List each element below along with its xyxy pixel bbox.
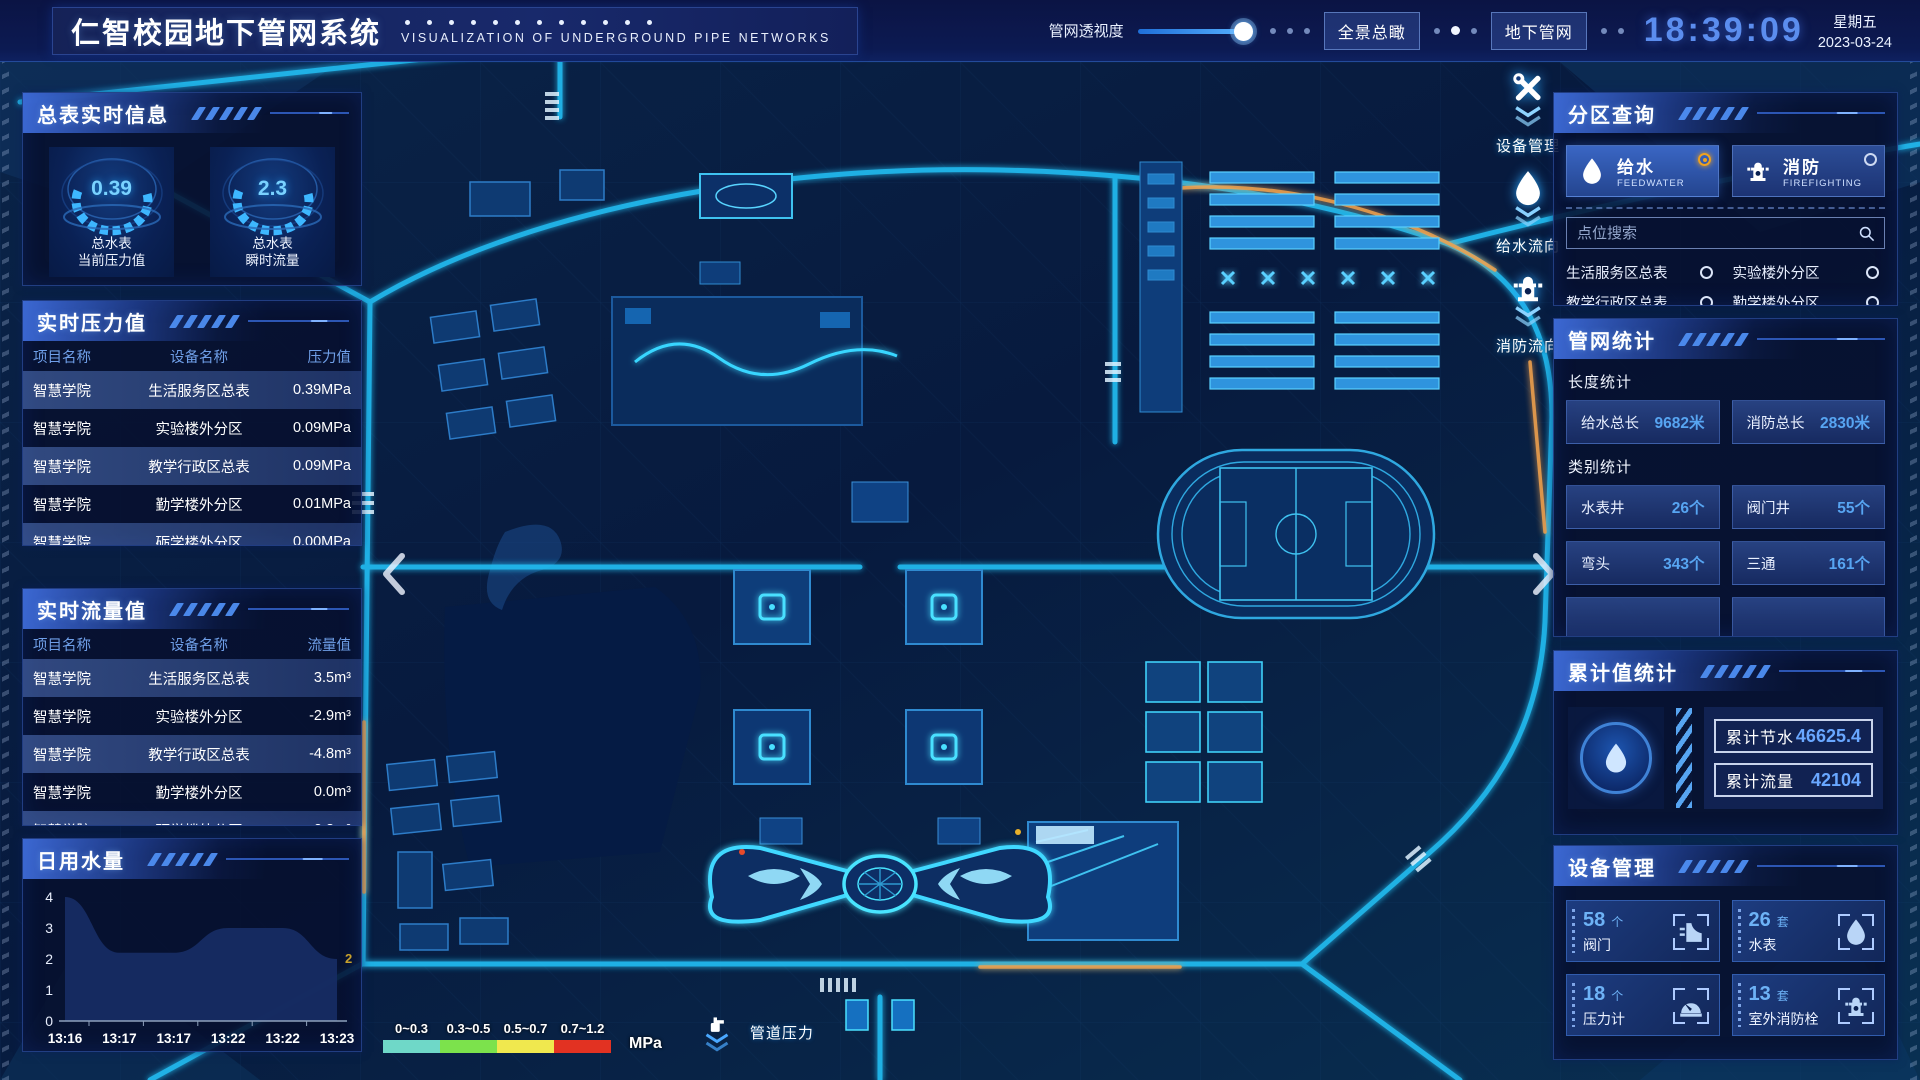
flow-table-body: 智慧学院 生活服务区总表 3.5m³ 智慧学院 实验楼外分区 -2.9m³ 智慧… xyxy=(23,659,361,826)
device-name: 教学行政区总表 xyxy=(125,456,273,477)
weekday-label: 星期五 xyxy=(1833,11,1877,32)
device-name: 砺学楼外分区 xyxy=(125,532,273,547)
stat-box: 三通 161个 xyxy=(1732,541,1886,585)
device-unit: 个 xyxy=(1611,915,1623,929)
opacity-slider-label: 管网透视度 xyxy=(1049,20,1124,41)
underground-button[interactable]: 地下管网 xyxy=(1491,12,1587,50)
device-name: 实验楼外分区 xyxy=(125,706,273,727)
legend-range-label: 0~0.3 xyxy=(395,1021,428,1036)
gauge-label: 总水表当前压力值 xyxy=(49,235,174,269)
flow-value: 3.5m³ xyxy=(273,670,351,686)
y-tick-label: 0 xyxy=(45,1013,53,1029)
cumulative-label: 累计流量 xyxy=(1726,768,1794,792)
panel-device-management: 设备管理 58个 阀门 26套 水表 xyxy=(1553,845,1898,1060)
device-name: 勤学楼外分区 xyxy=(125,494,273,515)
x-tick-label: 13:17 xyxy=(157,1031,192,1046)
project-name: 智慧学院 xyxy=(33,418,125,439)
pressure-table-row[interactable]: 智慧学院 实验楼外分区 0.09MPa xyxy=(23,409,361,447)
project-name: 智慧学院 xyxy=(33,532,125,547)
device-icon xyxy=(1838,914,1874,950)
pressure-value: 0.01MPa xyxy=(273,496,351,512)
panel-meter-info: 总表实时信息 0.39 总水表当前压力值 xyxy=(22,92,362,286)
slider-track[interactable] xyxy=(1138,29,1250,34)
panel-title: 累计值统计 xyxy=(1568,657,1678,686)
gauge-flow: 2.3 总水表瞬时流量 xyxy=(210,147,335,277)
legend-range-label: 0.5~0.7 xyxy=(504,1021,548,1036)
panel-header: 总表实时信息 xyxy=(23,93,361,133)
panel-title: 设备管理 xyxy=(1568,852,1656,881)
legend-title: 管道压力 xyxy=(750,1022,814,1053)
slash-decoration xyxy=(1682,107,1745,120)
panel-title: 实时流量值 xyxy=(37,595,147,624)
float-button-label: 消防流向 xyxy=(1496,335,1560,356)
zone-radio[interactable] xyxy=(1700,296,1713,307)
tab-label: 给水 xyxy=(1617,153,1685,178)
legend-unit: MPa xyxy=(629,1035,662,1053)
pressure-value: 0.09MPa xyxy=(273,420,351,436)
stat-value: 55个 xyxy=(1837,496,1870,518)
category-stats-grid: 水表井 26个 阀门井 55个 弯头 343个 三通 xyxy=(1554,485,1897,637)
legend-color-swatch xyxy=(554,1040,611,1053)
project-name: 智慧学院 xyxy=(33,820,125,827)
stat-box: 弯头 343个 xyxy=(1566,541,1720,585)
hatch-decoration xyxy=(1676,708,1692,808)
device-count: 13 xyxy=(1749,983,1771,1005)
app-title-box: 仁智校园地下管网系统 VISUALIZATION OF UNDERGROUND … xyxy=(52,7,858,55)
zone-radio-item[interactable]: 教学行政区总表 xyxy=(1566,287,1719,306)
zone-list: 生活服务区总表 实验楼外分区 教学行政区总表 勤学楼外分区 xyxy=(1554,249,1897,306)
project-name: 智慧学院 xyxy=(33,668,125,689)
flow-table-row[interactable]: 智慧学院 生活服务区总表 3.5m³ xyxy=(23,659,361,697)
cumulative-rows: 累计节水 46625.4 累计流量 42104 xyxy=(1704,707,1883,809)
flow-value: -2.9m³ xyxy=(273,708,351,724)
overview-button[interactable]: 全景总瞰 xyxy=(1324,12,1420,50)
dashboard: 仁智校园地下管网系统 VISUALIZATION OF UNDERGROUND … xyxy=(0,0,1920,1080)
stat-label: 消防总长 xyxy=(1747,412,1805,433)
stat-label: 三通 xyxy=(1747,553,1776,574)
float-button-icon xyxy=(1508,268,1548,308)
stat-label: 阀门井 xyxy=(1747,497,1791,518)
zone-radio[interactable] xyxy=(1700,266,1713,279)
panel-title: 管网统计 xyxy=(1568,325,1656,354)
cumulative-row: 累计节水 46625.4 xyxy=(1714,719,1873,753)
stat-label: 水表井 xyxy=(1581,497,1625,518)
project-name: 智慧学院 xyxy=(33,782,125,803)
cumulative-label: 累计节水 xyxy=(1726,724,1794,748)
area-series xyxy=(65,897,337,1021)
panel-realtime-flow: 实时流量值 项目名称 设备名称 流量值 智慧学院 生活服务区总表 3.5m³ 智 xyxy=(22,588,362,826)
device-cards-grid: 58个 阀门 26套 水表 18个 压力计 xyxy=(1554,886,1897,1036)
category-stats-label: 类别统计 xyxy=(1554,444,1897,485)
project-name: 智慧学院 xyxy=(33,380,125,401)
project-name: 智慧学院 xyxy=(33,706,125,727)
device-card[interactable]: 18个 压力计 xyxy=(1566,974,1720,1036)
float-button-icon xyxy=(1508,168,1548,208)
gauge-value: 2.3 xyxy=(210,177,335,201)
separator-dots-small xyxy=(1601,28,1624,34)
pressure-table-row[interactable]: 智慧学院 教学行政区总表 0.09MPa xyxy=(23,447,361,485)
y-tick-label: 2 xyxy=(45,951,53,967)
device-name: 生活服务区总表 xyxy=(125,668,273,689)
stat-value: 2830米 xyxy=(1820,411,1870,433)
zone-radio[interactable] xyxy=(1866,296,1879,307)
header-line xyxy=(270,112,349,114)
stat-label: 给水总长 xyxy=(1581,412,1639,433)
flow-table-row[interactable]: 智慧学院 教学行政区总表 -4.8m³ xyxy=(23,735,361,773)
device-name: 砺学楼外分区 xyxy=(125,820,273,827)
zone-label: 教学行政区总表 xyxy=(1566,292,1668,307)
device-name: 实验楼外分区 xyxy=(125,418,273,439)
device-unit: 套 xyxy=(1777,989,1789,1003)
map-float-button[interactable]: 消防流向 xyxy=(1496,268,1560,356)
x-tick-label: 13:16 xyxy=(48,1031,83,1046)
flow-value: 0.0m³ xyxy=(273,784,351,800)
device-card[interactable]: 58个 阀门 xyxy=(1566,900,1720,962)
y-tick-label: 1 xyxy=(45,982,53,998)
cumulative-value: 42104 xyxy=(1811,770,1861,791)
pressure-value: 0.00MPa xyxy=(273,534,351,546)
tab-sublabel: FEEDWATER xyxy=(1617,178,1685,189)
panel-cumulative-stats: 累计值统计 累计节水 46625.4 累计流量 xyxy=(1553,650,1898,835)
flow-value: -4.8m³ xyxy=(273,746,351,762)
flow-table-row[interactable]: 智慧学院 砺学楼外分区 2.3m³ xyxy=(23,811,361,826)
search-icon[interactable] xyxy=(1857,224,1876,243)
device-icon xyxy=(1838,988,1874,1024)
separator-dots xyxy=(1270,28,1310,34)
device-name: 生活服务区总表 xyxy=(125,380,273,401)
device-name: 勤学楼外分区 xyxy=(125,782,273,803)
float-button-icon xyxy=(1508,68,1548,108)
panel-realtime-pressure: 实时压力值 项目名称 设备名称 压力值 智慧学院 生活服务区总表 0.39MPa xyxy=(22,300,362,546)
project-name: 智慧学院 xyxy=(33,494,125,515)
device-count: 18 xyxy=(1583,983,1605,1005)
chevron-down-icon xyxy=(1511,306,1545,333)
top-header: 仁智校园地下管网系统 VISUALIZATION OF UNDERGROUND … xyxy=(0,0,1920,62)
left-edge-decoration xyxy=(2,62,9,1080)
gauge-label: 总水表瞬时流量 xyxy=(210,235,335,269)
flow-table-row[interactable]: 智慧学院 勤学楼外分区 0.0m³ xyxy=(23,773,361,811)
zone-label: 实验楼外分区 xyxy=(1733,262,1820,283)
table-header: 项目名称 设备名称 流量值 xyxy=(23,629,361,659)
panel-zone-query: 分区查询 给水 FEEDWATER 消防 FIREFIGHTING xyxy=(1553,92,1898,306)
legend-color-swatch xyxy=(440,1040,497,1053)
pressure-table-row[interactable]: 智慧学院 勤学楼外分区 0.01MPa xyxy=(23,485,361,523)
device-icon xyxy=(1673,914,1709,950)
stat-value: 9682米 xyxy=(1655,411,1705,433)
stat-value: 343个 xyxy=(1663,552,1704,574)
y-tick-label: 3 xyxy=(45,920,53,936)
legend-range-label: 0.7~1.2 xyxy=(561,1021,605,1036)
x-tick-label: 13:17 xyxy=(102,1031,137,1046)
device-unit: 套 xyxy=(1777,915,1789,929)
clock-time: 18:39:09 xyxy=(1644,11,1804,50)
hydrant-icon xyxy=(1743,156,1773,186)
pressure-legend: 0~0.3 0.3~0.5 0.5~0.7 0.7~1.2 M xyxy=(383,1014,814,1053)
slash-decoration xyxy=(151,853,214,866)
tab-firefighting[interactable]: 消防 FIREFIGHTING xyxy=(1732,145,1885,197)
length-stats-grid: 给水总长 9682米 消防总长 2830米 xyxy=(1554,400,1897,444)
point-search-box[interactable] xyxy=(1566,217,1885,249)
zone-radio[interactable] xyxy=(1866,266,1879,279)
legend-segment: 0.7~1.2 xyxy=(554,1021,611,1053)
gauge-pressure: 0.39 总水表当前压力值 xyxy=(49,147,174,277)
tab-radio[interactable] xyxy=(1698,153,1711,166)
panel-pipe-stats: 管网统计 长度统计 给水总长 9682米 消防总长 2830米 类别统计 xyxy=(1553,318,1898,637)
legend-segment: 0~0.3 xyxy=(383,1021,440,1053)
separator-dots-active xyxy=(1434,26,1477,35)
device-icon xyxy=(1673,988,1709,1024)
project-name: 智慧学院 xyxy=(33,456,125,477)
stat-box: 消防总长 2830米 xyxy=(1732,400,1886,444)
zone-radio-item[interactable]: 生活服务区总表 xyxy=(1566,257,1719,287)
stat-label: 弯头 xyxy=(1581,553,1610,574)
legend-segment: 0.3~0.5 xyxy=(440,1021,497,1053)
legend-range-label: 0.3~0.5 xyxy=(447,1021,491,1036)
pressure-table-row[interactable]: 智慧学院 砺学楼外分区 0.00MPa xyxy=(23,523,361,546)
stat-box: 水表井 26个 xyxy=(1566,485,1720,529)
chevron-down-icon xyxy=(1511,206,1545,233)
tab-radio[interactable] xyxy=(1864,153,1877,166)
device-unit: 个 xyxy=(1611,989,1623,1003)
panel-title: 日用水量 xyxy=(37,845,125,874)
slash-decoration xyxy=(195,107,258,120)
right-edge-decoration xyxy=(1910,62,1917,1080)
device-count: 58 xyxy=(1583,909,1605,931)
gauge-value: 0.39 xyxy=(49,177,174,201)
slash-decoration xyxy=(1682,333,1745,346)
pressure-value: 0.39MPa xyxy=(273,382,351,398)
opacity-slider[interactable] xyxy=(1138,21,1256,41)
stat-box xyxy=(1732,597,1886,637)
slash-decoration xyxy=(173,315,236,328)
app-subtitle: VISUALIZATION OF UNDERGROUND PIPE NETWOR… xyxy=(401,31,831,45)
flow-table-row[interactable]: 智慧学院 实验楼外分区 -2.9m³ xyxy=(23,697,361,735)
y-tick-label: 4 xyxy=(45,889,53,905)
pressure-value: 0.09MPa xyxy=(273,458,351,474)
stat-box: 阀门井 55个 xyxy=(1732,485,1886,529)
x-tick-label: 13:22 xyxy=(211,1031,246,1046)
float-button-label: 给水流向 xyxy=(1496,235,1560,256)
legend-segment: 0.5~0.7 xyxy=(497,1021,554,1053)
water-drop-icon xyxy=(1577,156,1607,186)
stat-box: 给水总长 9682米 xyxy=(1566,400,1720,444)
zone-radio-item[interactable]: 勤学楼外分区 xyxy=(1733,287,1886,306)
tab-sublabel: FIREFIGHTING xyxy=(1783,178,1862,189)
device-card[interactable]: 13套 室外消防栓 xyxy=(1732,974,1886,1036)
legend-color-swatch xyxy=(383,1040,440,1053)
tab-feedwater[interactable]: 给水 FEEDWATER xyxy=(1566,145,1719,197)
zone-label: 生活服务区总表 xyxy=(1566,262,1668,283)
water-drop-icon xyxy=(1580,722,1652,794)
map-float-button[interactable]: 给水流向 xyxy=(1496,168,1560,256)
zone-label: 勤学楼外分区 xyxy=(1733,292,1820,307)
cumulative-row: 累计流量 42104 xyxy=(1714,763,1873,797)
table-header: 项目名称 设备名称 压力值 xyxy=(23,341,361,371)
panel-title: 实时压力值 xyxy=(37,307,147,336)
map-float-button[interactable]: 设备管理 xyxy=(1496,68,1560,156)
pressure-table-row[interactable]: 智慧学院 生活服务区总表 0.39MPa xyxy=(23,371,361,409)
device-name: 教学行政区总表 xyxy=(125,744,273,765)
tab-label: 消防 xyxy=(1783,153,1862,178)
slash-decoration xyxy=(1704,665,1767,678)
panel-title: 总表实时信息 xyxy=(37,99,169,128)
stat-box xyxy=(1566,597,1720,637)
length-stats-label: 长度统计 xyxy=(1554,359,1897,400)
x-tick-label: 13:23 xyxy=(320,1031,355,1046)
float-button-label: 设备管理 xyxy=(1496,135,1560,156)
legend-bar: 0~0.3 0.3~0.5 0.5~0.7 0.7~1.2 xyxy=(383,1021,611,1053)
stat-value: 26个 xyxy=(1672,496,1705,518)
panel-daily-water: 日用水量 0123413:1613:1713:1713:2213:2213:23… xyxy=(22,838,362,1052)
clock-date-block: 星期五 2023-03-24 xyxy=(1818,11,1892,51)
project-name: 智慧学院 xyxy=(33,744,125,765)
device-count: 26 xyxy=(1749,909,1771,931)
device-card[interactable]: 26套 水表 xyxy=(1732,900,1886,962)
legend-color-swatch xyxy=(497,1040,554,1053)
flow-value: 2.3m³ xyxy=(273,822,351,826)
pipe-pressure-icon xyxy=(702,1014,732,1053)
carousel-left-arrow[interactable] xyxy=(376,550,416,598)
zone-radio-item[interactable]: 实验楼外分区 xyxy=(1733,257,1886,287)
slider-thumb[interactable] xyxy=(1234,22,1253,41)
slash-decoration xyxy=(1682,860,1745,873)
daily-water-chart: 0123413:1613:1713:1713:2213:2213:232 xyxy=(33,885,355,1052)
panel-title: 分区查询 xyxy=(1568,99,1656,128)
search-input[interactable] xyxy=(1567,225,1884,242)
cumulative-value: 46625.4 xyxy=(1796,726,1861,747)
chevron-down-icon xyxy=(1511,106,1545,133)
date-label: 2023-03-24 xyxy=(1818,35,1892,51)
pressure-table-body: 智慧学院 生活服务区总表 0.39MPa 智慧学院 实验楼外分区 0.09MPa… xyxy=(23,371,361,546)
title-dots xyxy=(401,20,831,25)
stat-value: 161个 xyxy=(1829,552,1870,574)
app-title: 仁智校园地下管网系统 xyxy=(71,10,381,52)
last-point-label: 2 xyxy=(345,951,352,966)
x-tick-label: 13:22 xyxy=(265,1031,300,1046)
water-emblem xyxy=(1568,707,1664,809)
slash-decoration xyxy=(173,603,236,616)
dashed-divider xyxy=(1566,207,1885,209)
